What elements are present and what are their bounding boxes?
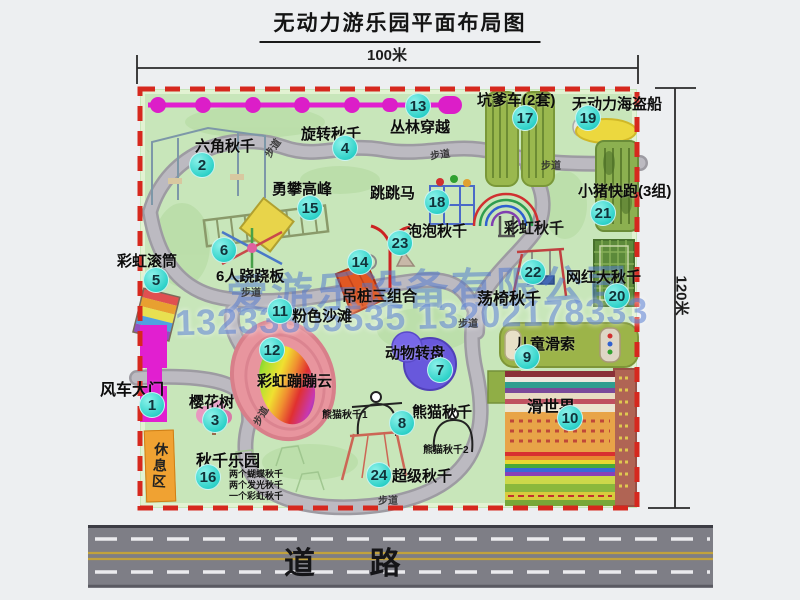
marker-13: 13	[405, 93, 431, 119]
marker-15: 15	[297, 195, 323, 221]
note-label-5: 一个彩虹秋千	[229, 489, 283, 502]
marker-5: 5	[143, 267, 169, 293]
equip-label-6: 6人跷跷板	[216, 265, 284, 286]
playground-plan: 无动力游乐园平面布局图 100米 120米	[0, 0, 800, 600]
footpath-label-6: 步道	[378, 492, 398, 507]
equip-label-14: 吊桩三组合	[342, 285, 417, 306]
marker-6: 6	[211, 237, 237, 263]
footpath-label-4: 步道	[249, 403, 272, 428]
equip-label-23: 泡泡秋千	[407, 220, 467, 241]
marker-1: 1	[139, 392, 165, 418]
footpath-label-5: 步道	[458, 315, 478, 330]
note-label-1: 熊猫秋千1	[322, 406, 368, 421]
equip-label-22: 荡椅秋千	[477, 285, 541, 309]
equip-label-20: 网红大秋千	[566, 266, 641, 287]
marker-17: 17	[512, 105, 538, 131]
marker-9: 9	[514, 344, 540, 370]
equip-label-11: 粉色沙滩	[292, 305, 352, 326]
note-label-0: 彩虹秋千	[504, 217, 564, 238]
equip-label-21: 小猪快跑(3组)	[578, 180, 671, 201]
note-label-2: 熊猫秋千2	[423, 441, 469, 456]
marker-11: 11	[267, 298, 293, 324]
marker-12: 12	[259, 337, 285, 363]
marker-21: 21	[590, 200, 616, 226]
map-labels: 风车大门1六角秋千2樱花树3旋转秋千4彩虹滚筒56人跷跷板6动物转盘7熊猫秋千8…	[0, 0, 800, 600]
footpath-label-2: 步道	[541, 157, 561, 172]
footpath-label-1: 步道	[429, 145, 451, 163]
marker-24: 24	[366, 462, 392, 488]
marker-10: 10	[557, 405, 583, 431]
marker-4: 4	[332, 135, 358, 161]
marker-16: 16	[195, 464, 221, 490]
equip-label-12: 彩虹蹦蹦云	[257, 370, 332, 391]
equip-label-5: 彩虹滚筒	[117, 250, 177, 271]
marker-18: 18	[424, 189, 450, 215]
marker-22: 22	[520, 259, 546, 285]
marker-23: 23	[387, 230, 413, 256]
marker-20: 20	[604, 283, 630, 309]
marker-3: 3	[202, 407, 228, 433]
equip-label-18: 跳跳马	[370, 182, 415, 203]
equip-label-8: 熊猫秋千	[412, 401, 472, 422]
marker-2: 2	[189, 152, 215, 178]
marker-19: 19	[575, 105, 601, 131]
equip-label-15: 勇攀高峰	[272, 178, 332, 199]
equip-label-24: 超级秋千	[392, 465, 452, 486]
footpath-label-0: 步道	[260, 135, 284, 160]
marker-7: 7	[427, 357, 453, 383]
marker-8: 8	[389, 410, 415, 436]
marker-14: 14	[347, 249, 373, 275]
equip-label-13: 丛林穿越	[390, 116, 450, 137]
footpath-label-3: 步道	[241, 284, 261, 299]
